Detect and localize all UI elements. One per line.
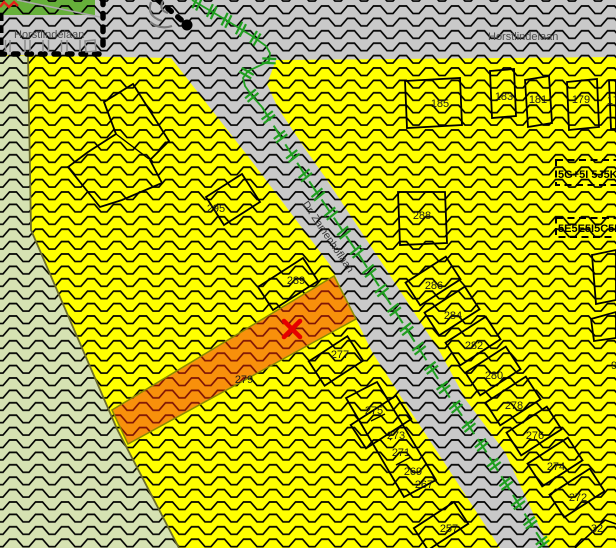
svg-text:179: 179	[572, 94, 590, 106]
svg-text:280: 280	[485, 370, 503, 382]
svg-text:282: 282	[465, 340, 483, 352]
svg-text:257: 257	[440, 523, 458, 535]
svg-text:275: 275	[365, 405, 383, 417]
svg-text:289: 289	[287, 275, 305, 287]
svg-text:183: 183	[495, 91, 513, 103]
svg-text:286: 286	[425, 280, 443, 292]
svg-text:185: 185	[431, 98, 449, 110]
svg-text:295: 295	[207, 203, 225, 215]
svg-text:274: 274	[547, 461, 565, 473]
svg-text:17: 17	[607, 95, 616, 107]
svg-text:5E5E5I5C5B5: 5E5E5I5C5B5	[558, 223, 616, 235]
svg-text:278: 278	[505, 400, 523, 412]
svg-text:273: 273	[387, 430, 405, 442]
svg-text:181: 181	[529, 94, 547, 106]
svg-text:9: 9	[611, 360, 616, 372]
svg-text:272: 272	[569, 492, 587, 504]
svg-text:271: 271	[392, 447, 410, 459]
svg-text:288: 288	[413, 210, 431, 222]
svg-text:32: 32	[591, 523, 603, 535]
svg-text:Horstlindelaan: Horstlindelaan	[14, 29, 84, 41]
svg-text:269: 269	[404, 466, 422, 478]
svg-text:Horstlindelaan: Horstlindelaan	[488, 31, 558, 43]
svg-text:277: 277	[331, 349, 349, 361]
svg-text:279: 279	[235, 374, 253, 386]
svg-text:276: 276	[526, 430, 544, 442]
svg-text:267: 267	[415, 479, 433, 491]
svg-text:284: 284	[444, 310, 462, 322]
svg-text:5G+5I 5J5K5: 5G+5I 5J5K5	[558, 169, 616, 181]
